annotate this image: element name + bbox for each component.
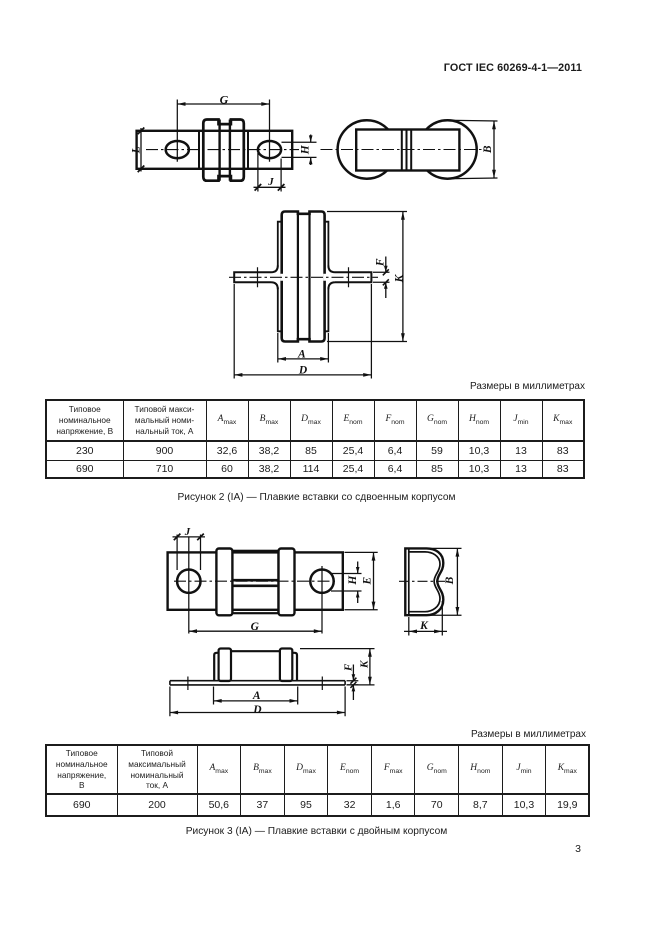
svg-text:F: F [342,663,354,672]
svg-text:K: K [393,273,405,283]
svg-text:H: H [299,144,311,155]
svg-text:G: G [220,93,229,107]
svg-text:H: H [347,575,359,586]
svg-text:A: A [252,690,261,702]
svg-text:F: F [375,258,387,267]
svg-text:A: A [297,348,306,360]
svg-text:D: D [252,704,262,716]
svg-text:J: J [184,526,191,538]
svg-text:B: B [444,576,456,585]
svg-text:D: D [298,365,308,377]
svg-text:K: K [419,620,429,632]
svg-text:G: G [251,621,260,633]
svg-text:K: K [358,660,370,669]
svg-text:L: L [130,146,142,154]
svg-text:J: J [267,176,274,188]
svg-text:E: E [362,577,374,586]
svg-text:B: B [482,145,494,154]
